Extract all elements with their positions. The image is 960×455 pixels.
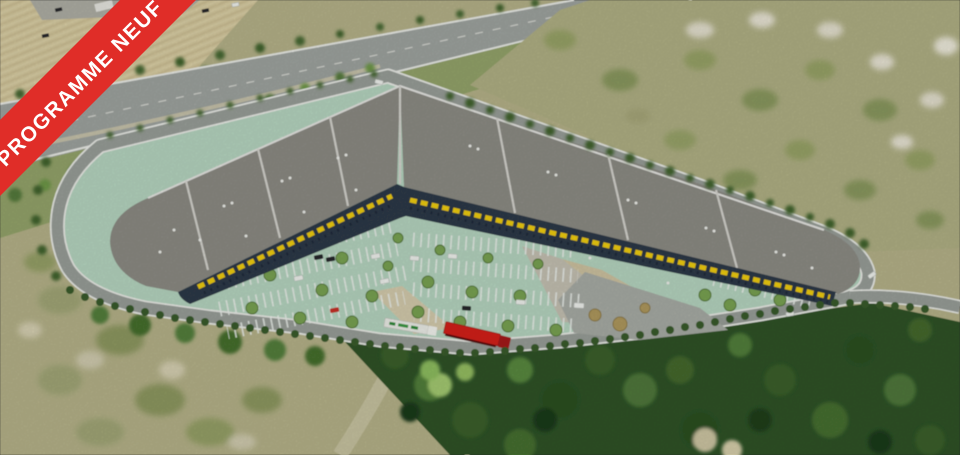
marketing-image: PROGRAMME NEUF [0, 0, 960, 455]
photo-grain-overlay [0, 0, 960, 455]
